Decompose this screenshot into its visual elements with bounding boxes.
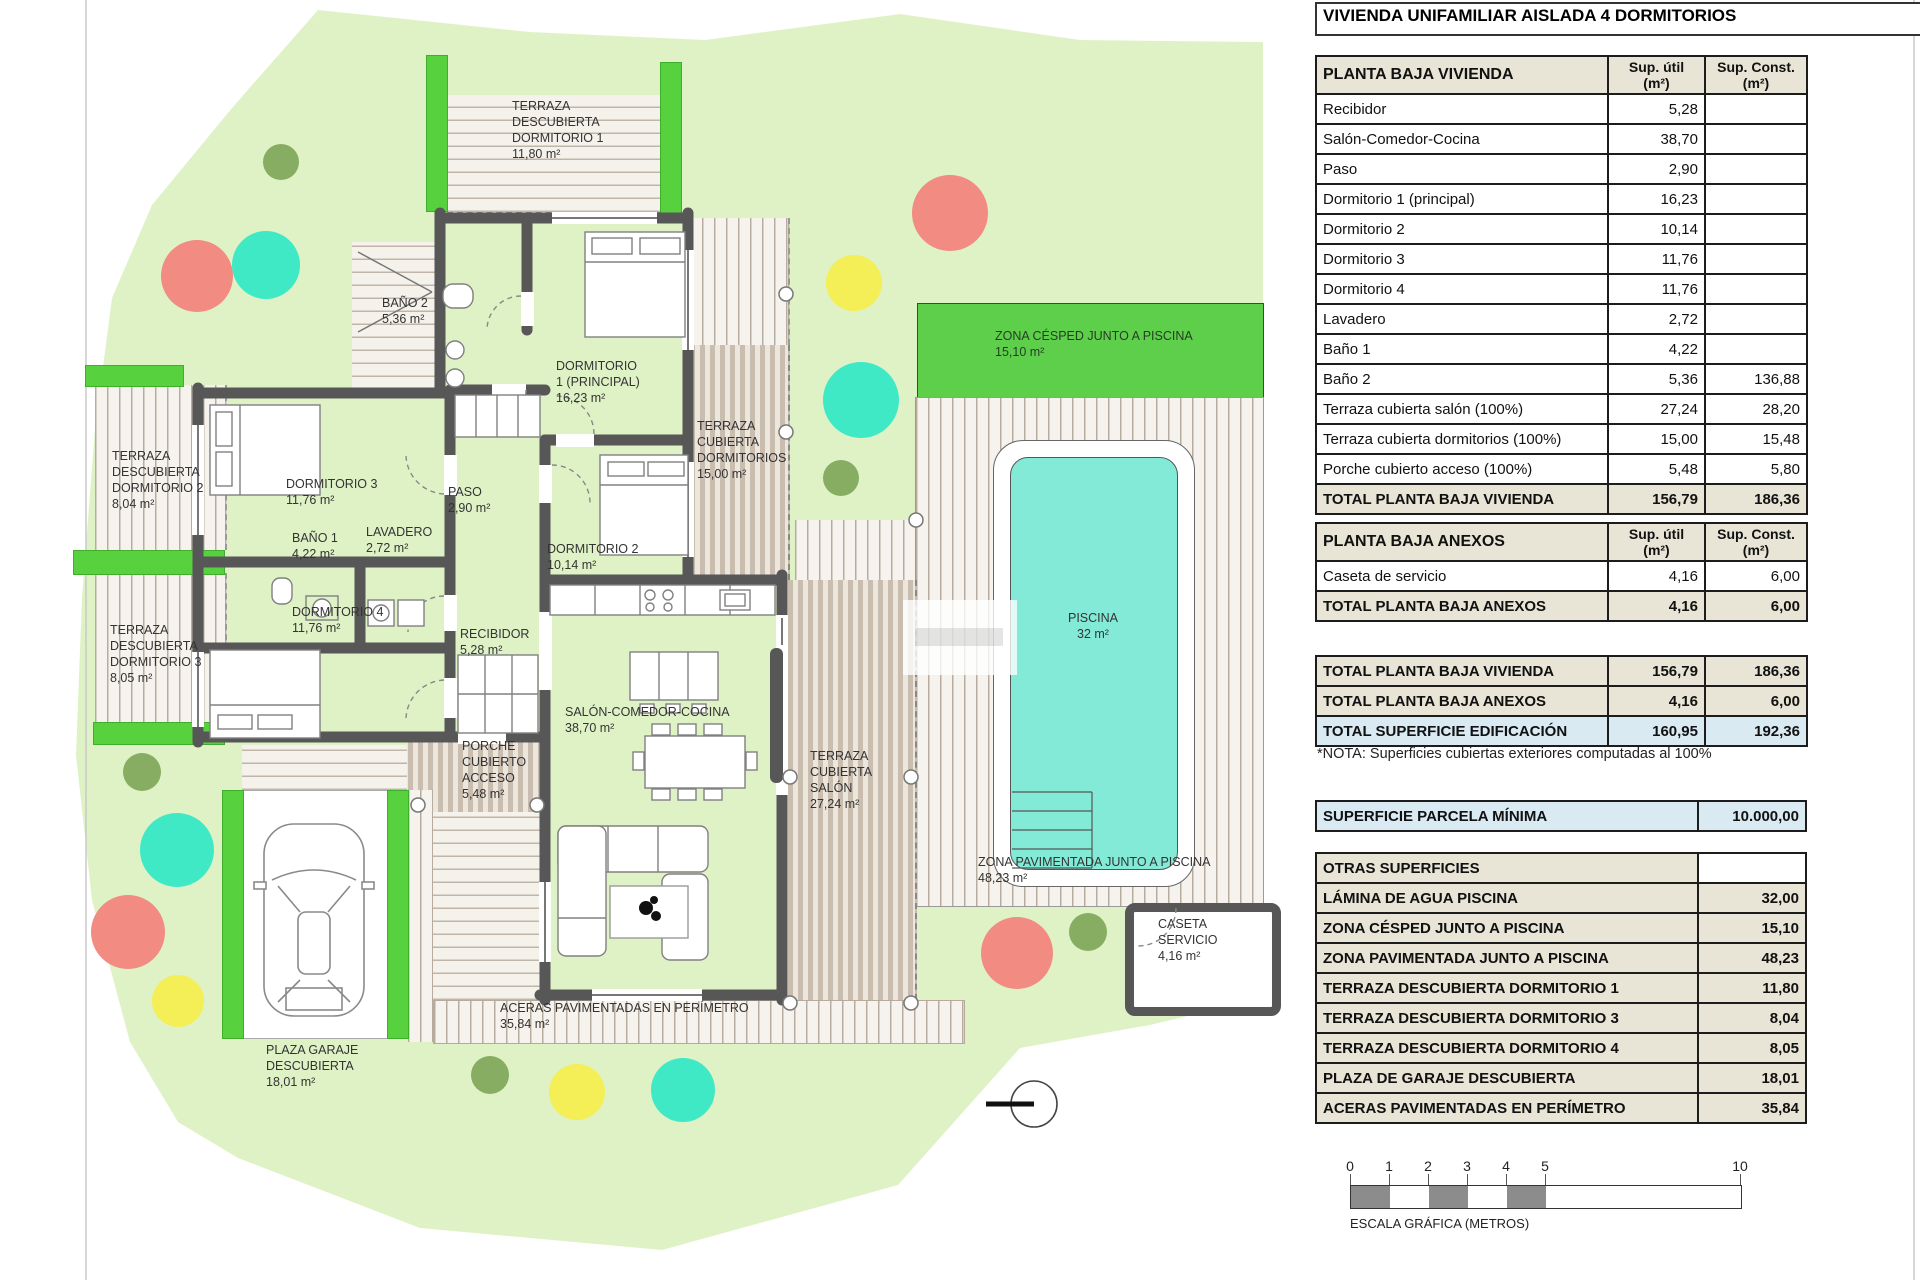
otras-superficies-table: OTRAS SUPERFICIES LÁMINA DE AGUA PISCINA… <box>1315 852 1807 1124</box>
row-label: Paso <box>1316 154 1608 184</box>
table-row: Baño 25,36136,88 <box>1316 364 1807 394</box>
row-util: 2,90 <box>1608 154 1705 184</box>
table-header-row: OTRAS SUPERFICIES <box>1316 853 1806 883</box>
row-const: 192,36 <box>1705 716 1807 746</box>
table-row: Terraza cubierta salón (100%)27,2428,20 <box>1316 394 1807 424</box>
row-value: 18,01 <box>1698 1063 1806 1093</box>
floor-plan-sheet: TERRAZA DESCUBIERTA DORMITORIO 1 11,80 m… <box>0 0 1920 1280</box>
row-util: 4,16 <box>1608 686 1705 716</box>
row-label: TERRAZA DESCUBIERTA DORMITORIO 4 <box>1316 1033 1698 1063</box>
row-label: Dormitorio 3 <box>1316 244 1608 274</box>
label-terraza-dorm1: TERRAZA DESCUBIERTA DORMITORIO 1 11,80 m… <box>512 98 603 162</box>
total-label: TOTAL PLANTA BAJA VIVIENDA <box>1316 484 1608 514</box>
row-util: 11,76 <box>1608 274 1705 304</box>
table-row: TOTAL PLANTA BAJA ANEXOS4,166,00 <box>1316 686 1807 716</box>
table-row: Dormitorio 210,14 <box>1316 214 1807 244</box>
label-lavadero: LAVADERO 2,72 m² <box>366 524 432 556</box>
label-terraza-dorm2: TERRAZA DESCUBIERTA DORMITORIO 2 8,04 m² <box>112 448 203 512</box>
label-bano2: BAÑO 2 5,36 m² <box>382 295 428 327</box>
row-label: TOTAL PLANTA BAJA ANEXOS <box>1316 686 1608 716</box>
table-row: Salón-Comedor-Cocina38,70 <box>1316 124 1807 154</box>
table-header: PLANTA BAJA ANEXOS <box>1316 523 1608 561</box>
table-row: Dormitorio 1 (principal)16,23 <box>1316 184 1807 214</box>
row-util: 160,95 <box>1608 716 1705 746</box>
table-row: TOTAL PLANTA BAJA VIVIENDA156,79186,36 <box>1316 656 1807 686</box>
row-label: TERRAZA DESCUBIERTA DORMITORIO 3 <box>1316 1003 1698 1033</box>
label-salon: SALÓN-COMEDOR-COCINA 38,70 m² <box>565 704 730 736</box>
row-const <box>1705 154 1807 184</box>
label-dorm2: DORMITORIO 2 10,14 m² <box>547 541 638 573</box>
table-row: Terraza cubierta dormitorios (100%)15,00… <box>1316 424 1807 454</box>
row-label: Porche cubierto acceso (100%) <box>1316 454 1608 484</box>
total-const: 6,00 <box>1705 591 1807 621</box>
row-label: ZONA CÉSPED JUNTO A PISCINA <box>1316 913 1698 943</box>
row-value: 11,80 <box>1698 973 1806 1003</box>
label-dorm1: DORMITORIO 1 (PRINCIPAL) 16,23 m² <box>556 358 640 406</box>
north-symbol-icon <box>986 1081 1057 1127</box>
row-label: ZONA PAVIMENTADA JUNTO A PISCINA <box>1316 943 1698 973</box>
table-row: Dormitorio 311,76 <box>1316 244 1807 274</box>
row-label: TERRAZA DESCUBIERTA DORMITORIO 1 <box>1316 973 1698 1003</box>
nota-text: *NOTA: Superficies cubiertas exteriores … <box>1317 746 1712 762</box>
row-util: 10,14 <box>1608 214 1705 244</box>
row-util: 5,36 <box>1608 364 1705 394</box>
label-terraza-cub-dorm: TERRAZA CUBIERTA DORMITORIOS 15,00 m² <box>697 418 786 482</box>
table-total-row: TOTAL PLANTA BAJA VIVIENDA156,79186,36 <box>1316 484 1807 514</box>
table-header: PLANTA BAJA VIVIENDA <box>1316 56 1608 94</box>
row-const: 6,00 <box>1705 686 1807 716</box>
label-dorm4: DORMITORIO 4 11,76 m² <box>292 604 383 636</box>
table-header: OTRAS SUPERFICIES <box>1316 853 1698 883</box>
label-terraza-salon: TERRAZA CUBIERTA SALÓN 27,24 m² <box>810 748 872 812</box>
label-dorm3: DORMITORIO 3 11,76 m² <box>286 476 377 508</box>
label-zona-pavimentada: ZONA PAVIMENTADA JUNTO A PISCINA 48,23 m… <box>978 854 1210 886</box>
row-value: 15,10 <box>1698 913 1806 943</box>
table-row: Recibidor5,28 <box>1316 94 1807 124</box>
row-label: Salón-Comedor-Cocina <box>1316 124 1608 154</box>
label-zona-cesped: ZONA CÉSPED JUNTO A PISCINA 15,10 m² <box>995 328 1193 360</box>
label-terraza-dorm3: TERRAZA DESCUBIERTA DORMITORIO 3 8,05 m² <box>110 622 201 686</box>
row-util: 4,22 <box>1608 334 1705 364</box>
row-label: Baño 1 <box>1316 334 1608 364</box>
header-spacer <box>1698 853 1806 883</box>
row-label: Terraza cubierta dormitorios (100%) <box>1316 424 1608 454</box>
label-bano1: BAÑO 1 4,22 m² <box>292 530 338 562</box>
row-label: Terraza cubierta salón (100%) <box>1316 394 1608 424</box>
col-header-const: Sup. Const. (m²) <box>1705 523 1807 561</box>
total-label: TOTAL PLANTA BAJA ANEXOS <box>1316 591 1608 621</box>
row-util: 2,72 <box>1608 304 1705 334</box>
row-const: 28,20 <box>1705 394 1807 424</box>
parcela-table: SUPERFICIE PARCELA MÍNIMA 10.000,00 <box>1315 800 1807 832</box>
label-paso: PASO 2,90 m² <box>448 484 490 516</box>
row-const <box>1705 334 1807 364</box>
planta-baja-table: PLANTA BAJA VIVIENDA Sup. útil (m²) Sup.… <box>1315 55 1808 515</box>
row-label: TOTAL SUPERFICIE EDIFICACIÓN <box>1316 716 1608 746</box>
label-piscina: PISCINA 32 m² <box>1010 610 1176 642</box>
resumen-table: TOTAL PLANTA BAJA VIVIENDA156,79186,36 T… <box>1315 655 1808 747</box>
label-porche: PORCHE CUBIERTO ACCESO 5,48 m² <box>462 738 526 802</box>
label-caseta: CASETA SERVICIO 4,16 m² <box>1158 916 1218 964</box>
row-label: TOTAL PLANTA BAJA VIVIENDA <box>1316 656 1608 686</box>
row-label: Lavadero <box>1316 304 1608 334</box>
row-const: 136,88 <box>1705 364 1807 394</box>
table-row: TOTAL SUPERFICIE EDIFICACIÓN160,95192,36 <box>1316 716 1807 746</box>
row-util: 11,76 <box>1608 244 1705 274</box>
row-label: SUPERFICIE PARCELA MÍNIMA <box>1316 801 1698 831</box>
row-label: LÁMINA DE AGUA PISCINA <box>1316 883 1698 913</box>
row-util: 5,28 <box>1608 94 1705 124</box>
row-label: ACERAS PAVIMENTADAS EN PERÍMETRO <box>1316 1093 1698 1123</box>
table-row: PLAZA DE GARAJE DESCUBIERTA18,01 <box>1316 1063 1806 1093</box>
row-value: 8,05 <box>1698 1033 1806 1063</box>
row-util: 27,24 <box>1608 394 1705 424</box>
watermark-glyph <box>915 628 1003 646</box>
row-const <box>1705 244 1807 274</box>
table-row: Lavadero2,72 <box>1316 304 1807 334</box>
table-row: Baño 14,22 <box>1316 334 1807 364</box>
row-value: 32,00 <box>1698 883 1806 913</box>
total-util: 4,16 <box>1608 591 1705 621</box>
row-util: 4,16 <box>1608 561 1705 591</box>
row-util: 16,23 <box>1608 184 1705 214</box>
table-total-row: TOTAL PLANTA BAJA ANEXOS4,166,00 <box>1316 591 1807 621</box>
row-label: Baño 2 <box>1316 364 1608 394</box>
row-const: 6,00 <box>1705 561 1807 591</box>
row-const <box>1705 184 1807 214</box>
table-row: TERRAZA DESCUBIERTA DORMITORIO 111,80 <box>1316 973 1806 1003</box>
row-label: Caseta de servicio <box>1316 561 1608 591</box>
car <box>254 824 374 1016</box>
row-value: 8,04 <box>1698 1003 1806 1033</box>
table-row: LÁMINA DE AGUA PISCINA32,00 <box>1316 883 1806 913</box>
row-value: 10.000,00 <box>1698 801 1806 831</box>
row-const <box>1705 274 1807 304</box>
row-label: Recibidor <box>1316 94 1608 124</box>
table-row: Caseta de servicio4,166,00 <box>1316 561 1807 591</box>
row-util: 5,48 <box>1608 454 1705 484</box>
table-row: TERRAZA DESCUBIERTA DORMITORIO 48,05 <box>1316 1033 1806 1063</box>
total-const: 186,36 <box>1705 484 1807 514</box>
row-const <box>1705 124 1807 154</box>
sliding-door <box>770 648 783 783</box>
table-row: ACERAS PAVIMENTADAS EN PERÍMETRO35,84 <box>1316 1093 1806 1123</box>
table-header-row: PLANTA BAJA ANEXOS Sup. útil (m²) Sup. C… <box>1316 523 1807 561</box>
total-util: 156,79 <box>1608 484 1705 514</box>
table-row: ZONA PAVIMENTADA JUNTO A PISCINA48,23 <box>1316 943 1806 973</box>
row-label: Dormitorio 4 <box>1316 274 1608 304</box>
col-header-const: Sup. Const. (m²) <box>1705 56 1807 94</box>
sheet-title: VIVIENDA UNIFAMILIAR AISLADA 4 DORMITORI… <box>1315 2 1920 36</box>
row-util: 156,79 <box>1608 656 1705 686</box>
row-const <box>1705 94 1807 124</box>
col-header-util: Sup. útil (m²) <box>1608 523 1705 561</box>
row-util: 15,00 <box>1608 424 1705 454</box>
table-row: ZONA CÉSPED JUNTO A PISCINA15,10 <box>1316 913 1806 943</box>
row-const: 15,48 <box>1705 424 1807 454</box>
row-label: PLAZA DE GARAJE DESCUBIERTA <box>1316 1063 1698 1093</box>
row-value: 35,84 <box>1698 1093 1806 1123</box>
label-plaza-garaje: PLAZA GARAJE DESCUBIERTA 18,01 m² <box>266 1042 358 1090</box>
row-label: Dormitorio 1 (principal) <box>1316 184 1608 214</box>
watermark <box>903 600 1017 675</box>
row-const <box>1705 214 1807 244</box>
table-row: Porche cubierto acceso (100%)5,485,80 <box>1316 454 1807 484</box>
table-row: Dormitorio 411,76 <box>1316 274 1807 304</box>
col-header-util: Sup. útil (m²) <box>1608 56 1705 94</box>
row-label: Dormitorio 2 <box>1316 214 1608 244</box>
row-const: 186,36 <box>1705 656 1807 686</box>
row-util: 38,70 <box>1608 124 1705 154</box>
table-row: Paso2,90 <box>1316 154 1807 184</box>
row-const <box>1705 304 1807 334</box>
row-value: 48,23 <box>1698 943 1806 973</box>
label-aceras: ACERAS PAVIMENTADAS EN PERÍMETRO 35,84 m… <box>500 1000 749 1032</box>
table-row: TERRAZA DESCUBIERTA DORMITORIO 38,04 <box>1316 1003 1806 1033</box>
table-header-row: PLANTA BAJA VIVIENDA Sup. útil (m²) Sup.… <box>1316 56 1807 94</box>
row-const: 5,80 <box>1705 454 1807 484</box>
table-row: SUPERFICIE PARCELA MÍNIMA 10.000,00 <box>1316 801 1806 831</box>
anexos-table: PLANTA BAJA ANEXOS Sup. útil (m²) Sup. C… <box>1315 522 1808 622</box>
label-recibidor: RECIBIDOR 5,28 m² <box>460 626 529 658</box>
